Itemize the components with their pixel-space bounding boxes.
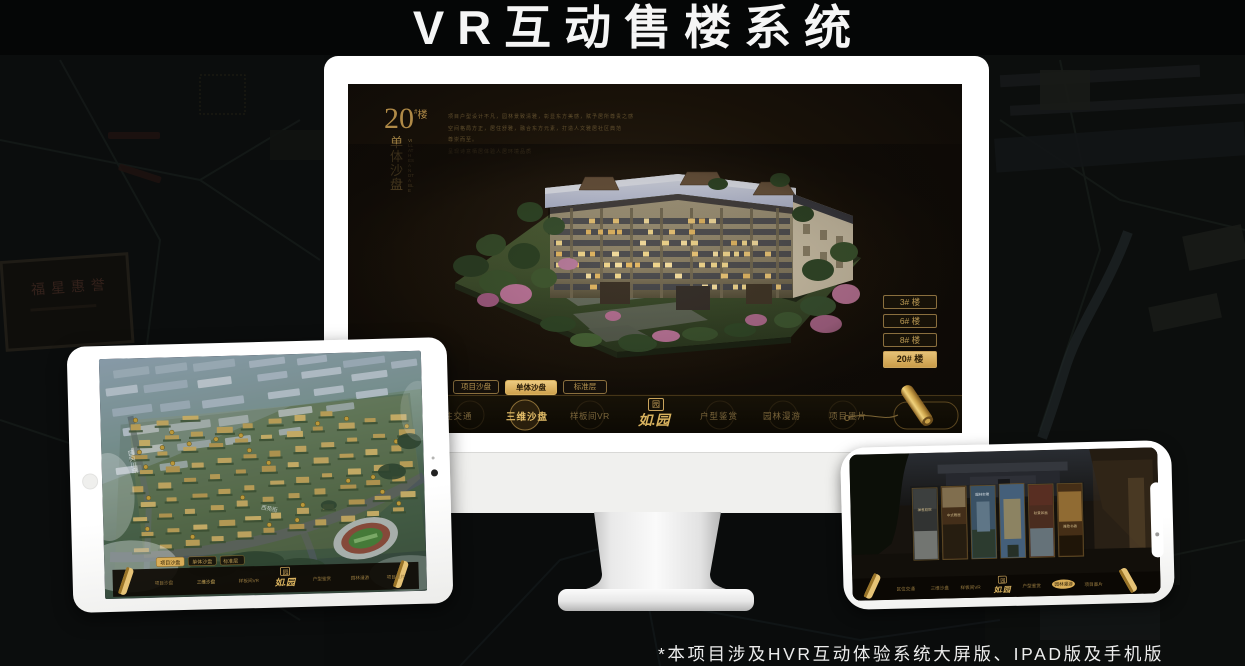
svg-text:中式雅居: 中式雅居 — [947, 512, 962, 517]
svg-text:园: 园 — [282, 569, 288, 576]
svg-text:园林实景: 园林实景 — [975, 491, 990, 496]
svg-text:禅意庭院: 禅意庭院 — [918, 507, 933, 512]
svg-text:项目沙盘: 项目沙盘 — [160, 559, 180, 567]
svg-text:园: 园 — [1000, 578, 1005, 584]
svg-text:标准层: 标准层 — [223, 558, 238, 565]
svg-text:单体沙盘: 单体沙盘 — [192, 558, 212, 566]
svg-text:秋景如画: 秋景如画 — [1034, 510, 1049, 515]
svg-text:如.园: 如.园 — [993, 585, 1012, 594]
svg-text:如.园: 如.园 — [275, 577, 298, 588]
svg-text:雅致书香: 雅致书香 — [1063, 523, 1078, 528]
